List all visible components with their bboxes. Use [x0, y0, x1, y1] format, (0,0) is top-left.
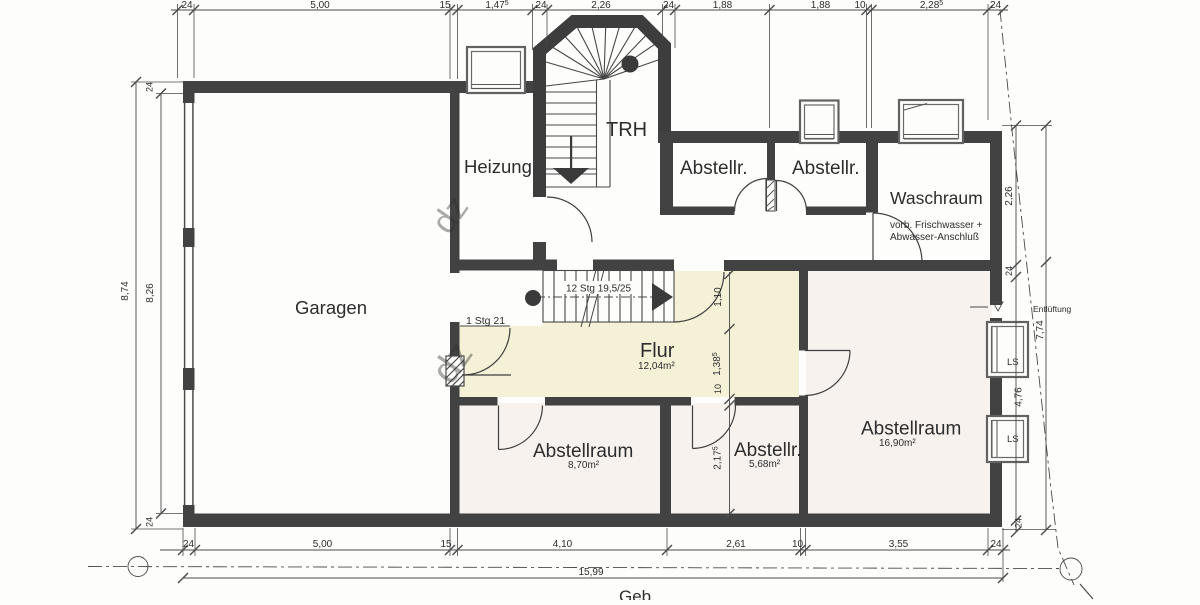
- svg-text:Abstellr.: Abstellr.: [792, 158, 860, 179]
- svg-text:2,26: 2,26: [1004, 186, 1015, 206]
- svg-text:3,55: 3,55: [889, 539, 909, 550]
- svg-text:Abwasser-Anschluß: Abwasser-Anschluß: [890, 232, 979, 243]
- svg-text:24: 24: [663, 0, 675, 11]
- svg-text:24: 24: [1014, 518, 1024, 528]
- svg-text:24: 24: [145, 82, 155, 92]
- svg-text:8,70m²: 8,70m²: [568, 460, 600, 471]
- svg-text:12 Stg 19,5/25: 12 Stg 19,5/25: [566, 284, 631, 295]
- svg-text:Waschraum: Waschraum: [890, 188, 983, 208]
- svg-text:TRH: TRH: [606, 119, 647, 141]
- svg-text:Abstellraum: Abstellraum: [533, 441, 633, 462]
- svg-text:Abstellr.: Abstellr.: [734, 440, 802, 461]
- svg-text:vorb. Frischwasser +: vorb. Frischwasser +: [890, 220, 983, 231]
- svg-text:Abstellr.: Abstellr.: [680, 158, 748, 179]
- svg-text:4,76: 4,76: [1014, 387, 1025, 407]
- svg-text:15,99: 15,99: [578, 567, 603, 578]
- svg-text:Heizung: Heizung: [464, 156, 532, 177]
- svg-text:24: 24: [145, 517, 155, 527]
- svg-text:Flur: Flur: [640, 340, 675, 362]
- svg-text:5,00: 5,00: [313, 539, 333, 550]
- svg-text:Geb: Geb: [619, 587, 651, 600]
- svg-text:7,74: 7,74: [1035, 320, 1046, 340]
- svg-text:2,26: 2,26: [591, 0, 611, 11]
- svg-text:8,26: 8,26: [145, 283, 156, 303]
- svg-text:24: 24: [183, 539, 195, 550]
- svg-text:24: 24: [990, 0, 1002, 11]
- svg-text:10: 10: [854, 0, 866, 11]
- svg-text:Entlüftung: Entlüftung: [1033, 304, 1072, 314]
- svg-text:1,88: 1,88: [811, 0, 831, 11]
- svg-text:15: 15: [439, 0, 451, 11]
- svg-text:Garagen: Garagen: [295, 297, 367, 318]
- svg-text:8,74: 8,74: [120, 281, 131, 301]
- svg-text:LS: LS: [1007, 357, 1019, 368]
- svg-text:24: 24: [181, 0, 193, 11]
- svg-text:5,68m²: 5,68m²: [749, 459, 781, 470]
- svg-text:2,61: 2,61: [726, 539, 746, 550]
- svg-text:24: 24: [535, 0, 547, 11]
- svg-text:24: 24: [1004, 266, 1014, 276]
- svg-text:10: 10: [792, 539, 804, 550]
- svg-text:1 Stg 21: 1 Stg 21: [466, 315, 505, 327]
- svg-text:15: 15: [440, 539, 452, 550]
- svg-text:24: 24: [990, 539, 1002, 550]
- svg-text:Abstellraum: Abstellraum: [861, 419, 961, 440]
- svg-text:10: 10: [713, 384, 723, 394]
- svg-text:LS: LS: [1007, 434, 1019, 445]
- svg-text:12,04m²: 12,04m²: [638, 361, 675, 372]
- svg-text:5,00: 5,00: [310, 0, 330, 11]
- svg-text:1,10: 1,10: [713, 287, 724, 307]
- svg-text:1,88: 1,88: [713, 0, 733, 11]
- svg-text:16,90m²: 16,90m²: [879, 438, 916, 449]
- svg-text:4,10: 4,10: [553, 539, 573, 550]
